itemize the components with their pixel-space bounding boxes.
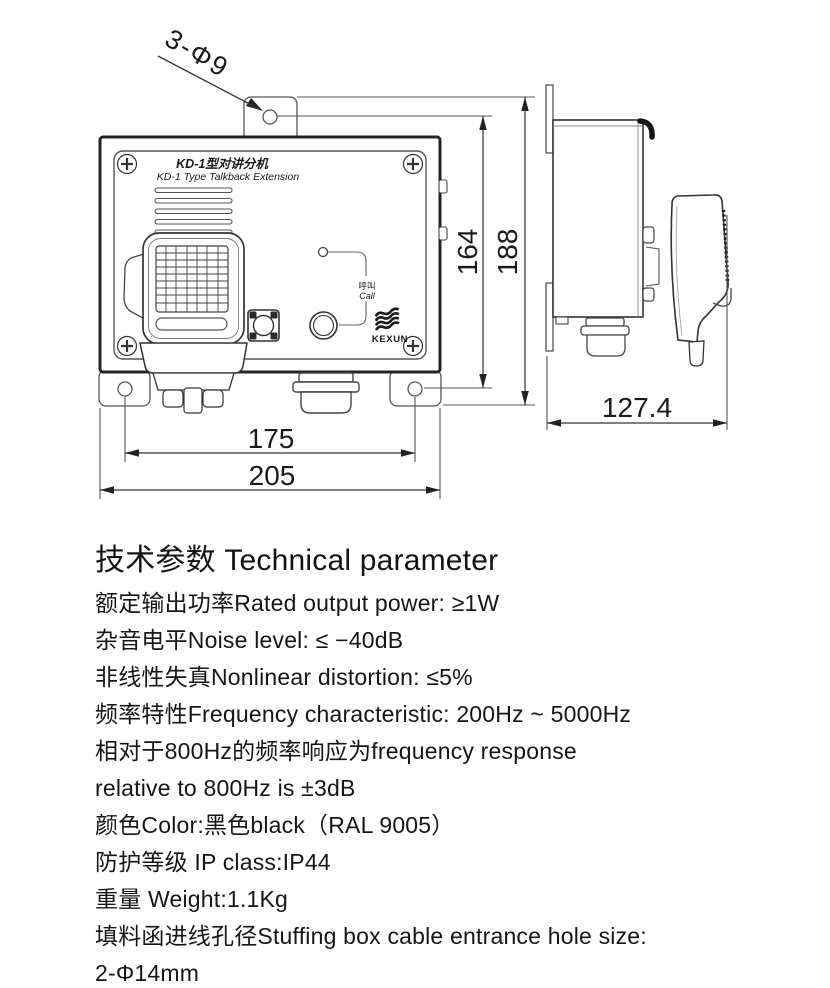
brand-name: KEXUN	[372, 334, 408, 345]
datasheet-page: KD-1型对讲分机 KD-1 Type Talkback Extension 呼…	[0, 0, 830, 988]
spec-line-rated-output: 额定输出功率Rated output power: ≥1W	[95, 585, 795, 622]
screw-icon	[118, 155, 137, 174]
mount-ear-bottom	[546, 283, 553, 351]
top-mount-hole	[263, 110, 277, 124]
spec-line-distortion: 非线性失真Nonlinear distortion: ≤5%	[95, 659, 795, 696]
enclosure-side	[553, 120, 643, 317]
spec-line-response-en: relative to 800Hz is ±3dB	[95, 770, 795, 807]
spec-line-ip-class: 防护等级 IP class:IP44	[95, 844, 795, 881]
cable-gland-front	[293, 373, 359, 413]
handset-holder	[646, 247, 659, 286]
hinge-bump	[439, 180, 447, 193]
mic-grid	[156, 246, 228, 312]
leader-label: 3-Φ9	[160, 23, 234, 83]
spec-line-weight: 重量 Weight:1.1Kg	[95, 881, 795, 918]
technical-drawing: KD-1型对讲分机 KD-1 Type Talkback Extension 呼…	[0, 0, 830, 540]
spec-line-response-cn: 相对于800Hz的频率响应为frequency response	[95, 733, 795, 770]
cable-gland-side	[581, 318, 629, 356]
dim-label-188: 188	[492, 229, 523, 276]
dim-label-175: 175	[248, 423, 295, 454]
device-title-cn: KD-1型对讲分机	[176, 157, 269, 171]
side-view	[546, 85, 731, 366]
screw-icon	[118, 337, 137, 356]
handset-slot	[156, 318, 227, 330]
mount-ear-top	[546, 85, 553, 153]
dim-label-205: 205	[249, 460, 296, 491]
spec-line-noise-level: 杂音电平Noise level: ≤ −40dB	[95, 622, 795, 659]
spec-line-stuffing-box: 填料函进线孔径Stuffing box cable entrance hole …	[95, 918, 795, 955]
spec-line-color: 颜色Color:黑色black（RAL 9005）	[95, 807, 795, 844]
bottom-left-hole	[118, 382, 132, 396]
bottom-right-hole	[408, 382, 422, 396]
hinge-bump	[439, 227, 447, 240]
call-button	[310, 312, 337, 339]
front-view: KD-1型对讲分机 KD-1 Type Talkback Extension 呼…	[99, 97, 447, 413]
dim-label-127-4: 127.4	[602, 392, 672, 423]
handset-side	[671, 195, 731, 366]
spec-line-hole-size: 2-Φ14mm	[95, 955, 795, 988]
technical-parameters: 技术参数 Technical parameter 额定输出功率Rated out…	[95, 544, 795, 988]
device-title-en: KD-1 Type Talkback Extension	[157, 171, 300, 183]
specs-heading: 技术参数 Technical parameter	[95, 544, 795, 578]
call-label-cn: 呼叫	[358, 281, 375, 291]
call-indicator-lamp	[319, 248, 328, 257]
dim-label-164: 164	[452, 229, 483, 276]
spec-line-frequency: 频率特性Frequency characteristic: 200Hz ~ 50…	[95, 696, 795, 733]
screw-icon	[404, 155, 423, 174]
call-label-en: Call	[359, 291, 376, 301]
square-button	[248, 310, 279, 341]
